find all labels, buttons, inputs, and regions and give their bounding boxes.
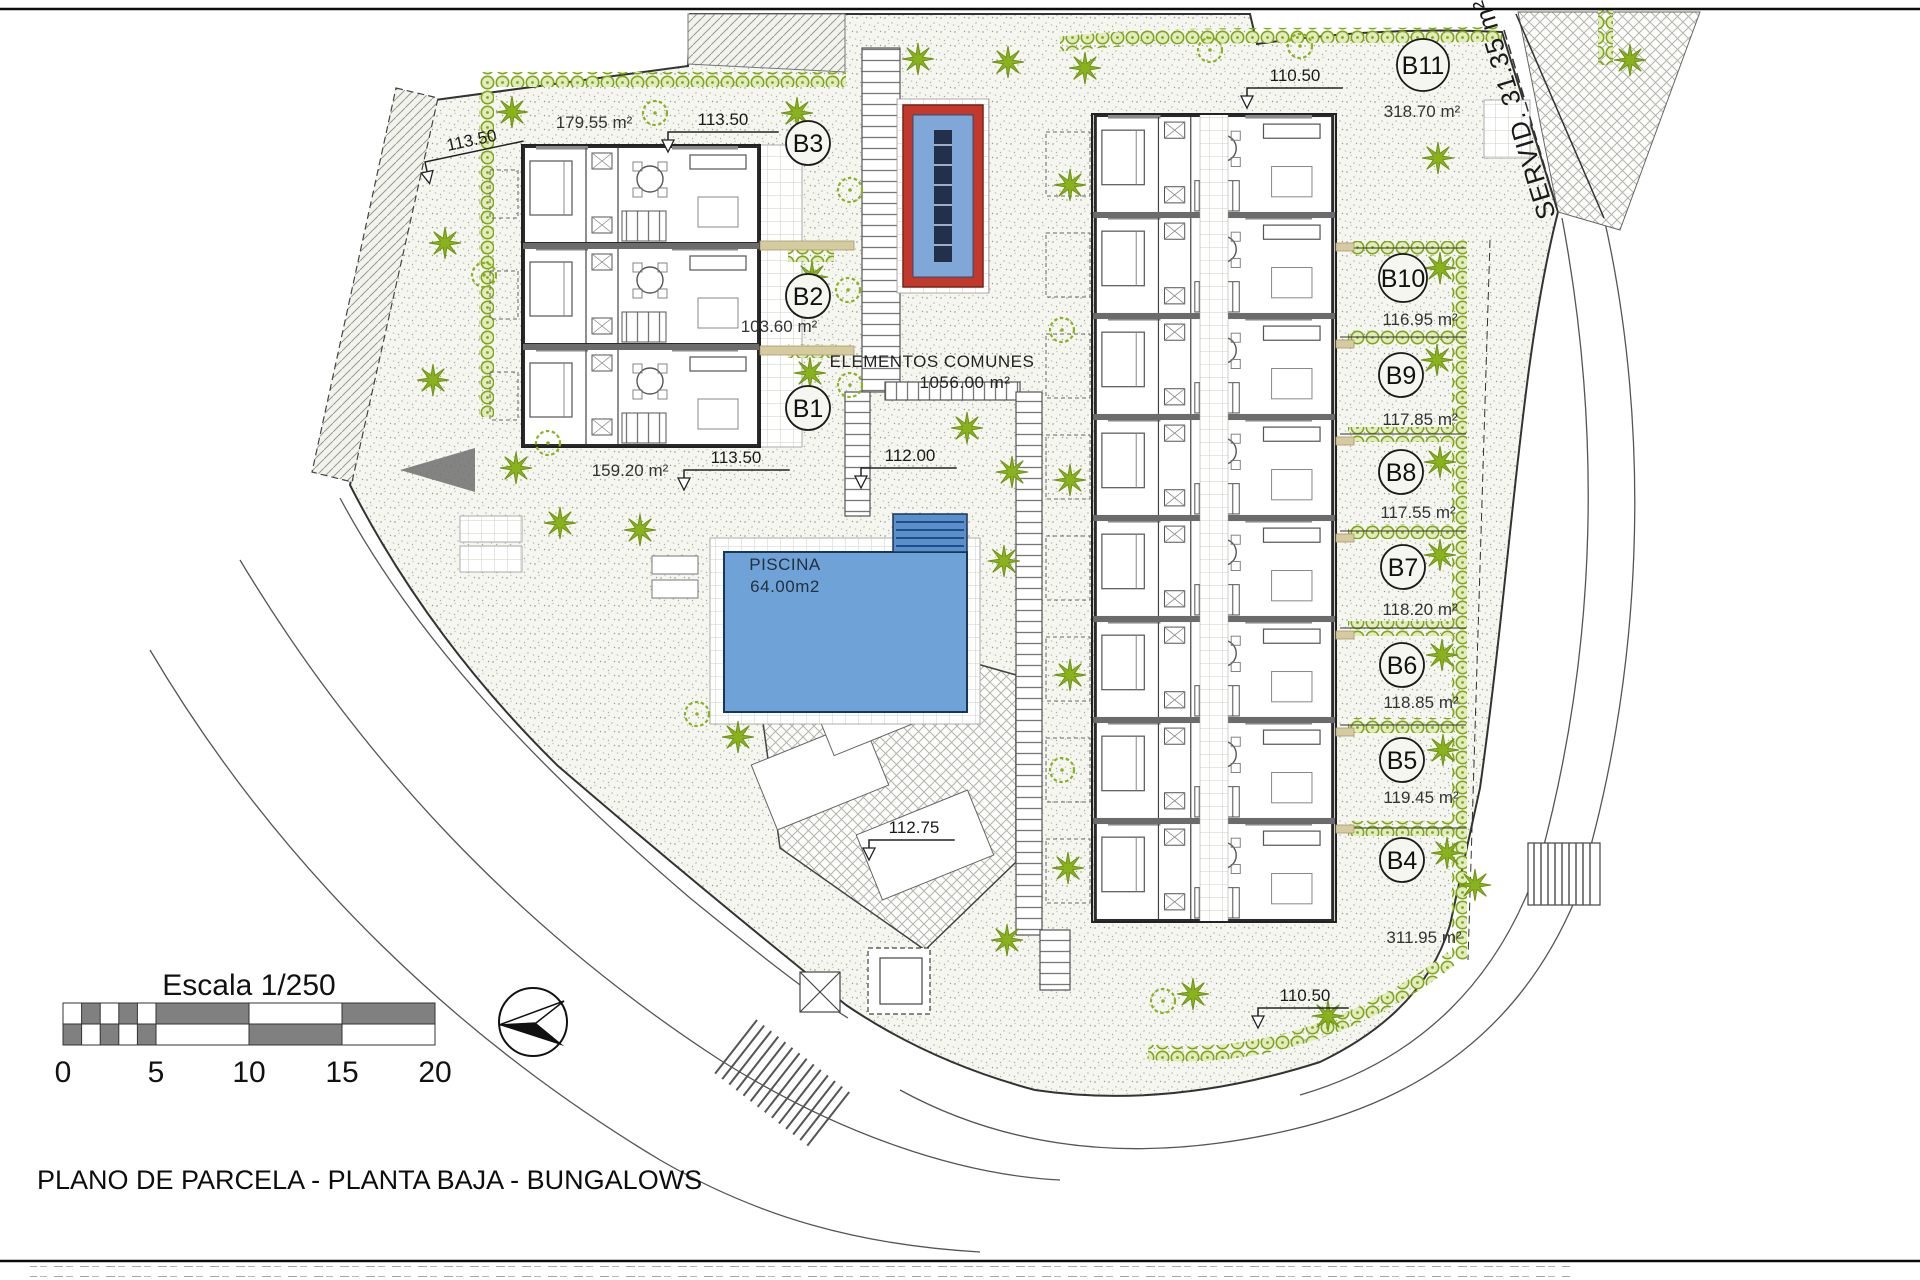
area-b11: 318.70 m² [1384, 102, 1461, 121]
svg-text:B5: B5 [1387, 747, 1418, 775]
svg-text:B7: B7 [1388, 554, 1419, 582]
svg-text:20: 20 [418, 1056, 451, 1089]
plot-label-b7: B7 [1381, 545, 1425, 589]
area-b2: 103.60 m² [741, 317, 818, 336]
svg-text:113.50: 113.50 [711, 448, 762, 467]
area-b10: 116.95 m² [1382, 310, 1458, 329]
svg-text:0: 0 [55, 1056, 72, 1089]
plot-label-b8: B8 [1379, 450, 1423, 494]
area-b1: 159.20 m² [592, 461, 669, 480]
svg-text:113.50: 113.50 [698, 110, 749, 129]
plot-label-b1: B1 [786, 386, 830, 430]
svg-text:15: 15 [325, 1056, 358, 1089]
svg-text:B4: B4 [1387, 847, 1418, 875]
svg-text:B3: B3 [793, 130, 824, 158]
area-b8: 117.55 m² [1380, 503, 1456, 522]
top-hatch-area [688, 14, 845, 72]
area-b5: 119.45 m² [1383, 788, 1459, 807]
svg-text:ELEMENTOS COMUNES: ELEMENTOS COMUNES [830, 352, 1035, 371]
svg-text:B9: B9 [1386, 362, 1417, 390]
site-plan-drawing: PISCINA 64.00m2 [0, 0, 1920, 1280]
svg-text:10: 10 [232, 1056, 265, 1089]
spa-feature [897, 99, 989, 293]
plot-label-b6: B6 [1380, 643, 1424, 687]
svg-text:B1: B1 [793, 395, 824, 423]
right-bungalow-block [1046, 114, 1354, 922]
svg-text:B8: B8 [1386, 459, 1417, 487]
svg-text:B10: B10 [1381, 265, 1425, 293]
area-b9: 117.85 m² [1382, 410, 1458, 429]
svg-text:110.50: 110.50 [1280, 986, 1331, 1005]
svg-text:1056.00 m²: 1056.00 m² [920, 373, 1011, 392]
svg-text:110.50: 110.50 [1270, 66, 1321, 85]
svg-text:112.00: 112.00 [885, 446, 936, 465]
svg-text:B2: B2 [793, 283, 824, 311]
pool-label: PISCINA [749, 555, 821, 574]
plot-label-b5: B5 [1380, 738, 1424, 782]
plot-label-b3: B3 [786, 121, 830, 165]
stairs-bottom-right [1528, 843, 1600, 905]
plot-label-b9: B9 [1379, 353, 1423, 397]
area-b7: 118.20 m² [1382, 600, 1458, 619]
sheet-title: PLANO DE PARCELA - PLANTA BAJA - BUNGALO… [37, 1165, 702, 1195]
area-b6: 118.85 m² [1383, 693, 1459, 712]
area-b3: 179.55 m² [556, 113, 633, 132]
plot-label-b11: B11 [1397, 39, 1449, 91]
svg-text:B6: B6 [1387, 652, 1418, 680]
plot-label-b4: B4 [1380, 838, 1424, 882]
svg-text:B11: B11 [1402, 52, 1445, 80]
plot-label-b2: B2 [786, 274, 830, 318]
svg-text:112.75: 112.75 [889, 818, 940, 837]
north-arrow-icon [499, 988, 567, 1056]
svg-text:5: 5 [148, 1056, 165, 1089]
site-plan-sheet: PISCINA 64.00m2 [0, 0, 1920, 1280]
area-b4: 311.95 m² [1386, 928, 1462, 947]
pool-area-label: 64.00m2 [750, 577, 820, 596]
plot-label-b10: B10 [1379, 254, 1427, 302]
scale-label: Escala 1/250 [162, 969, 335, 1002]
